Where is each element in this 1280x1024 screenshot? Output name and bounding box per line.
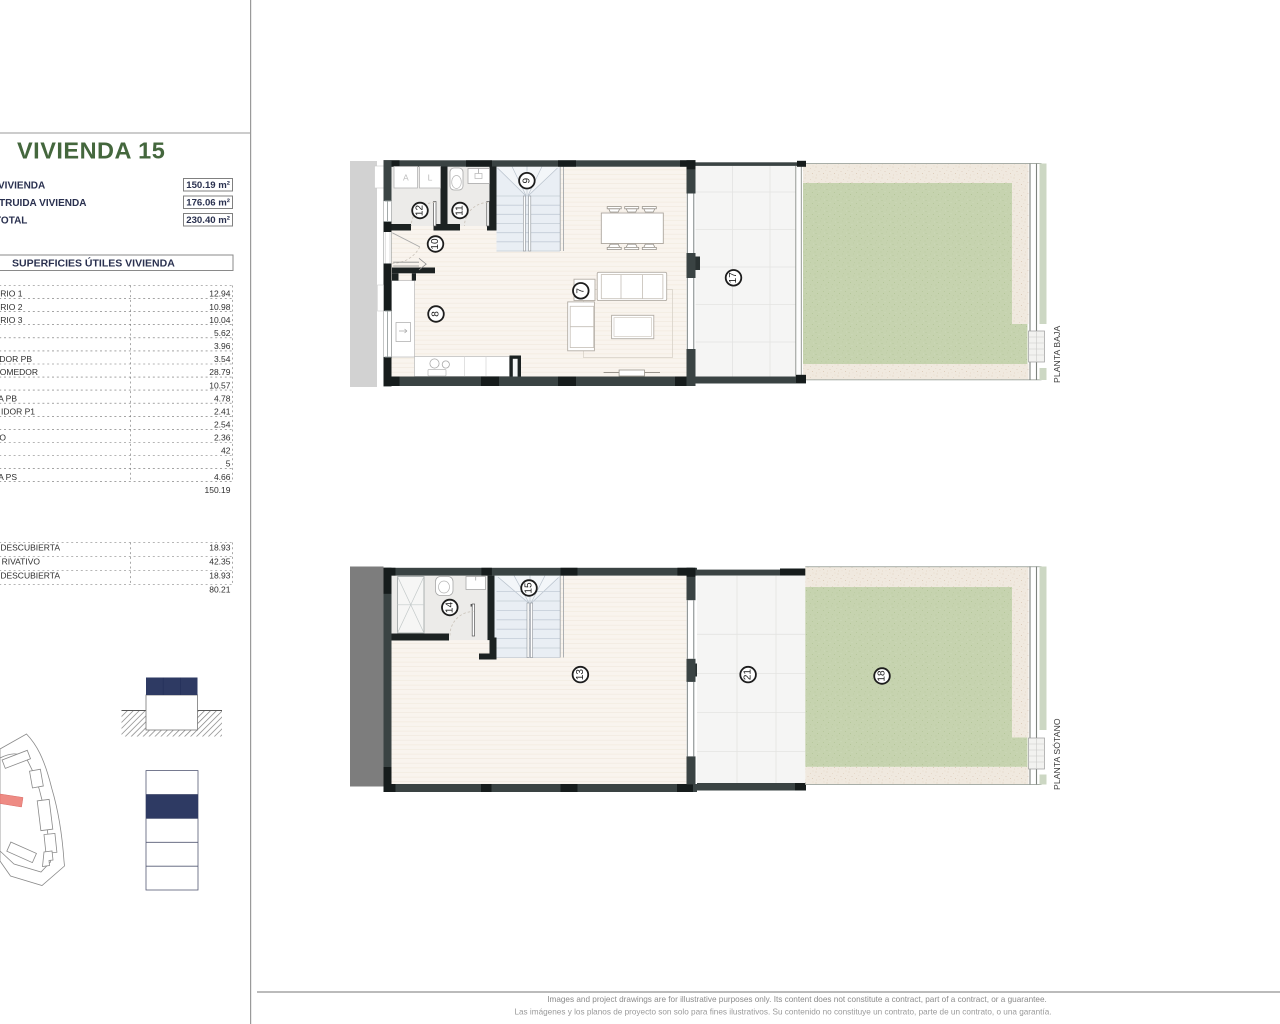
svg-text:2.36: 2.36 <box>214 433 231 443</box>
svg-text:RIO 3: RIO 3 <box>0 315 22 325</box>
svg-text:5.62: 5.62 <box>214 328 231 338</box>
svg-text:PLANTA BAJA: PLANTA BAJA <box>1052 326 1062 383</box>
svg-text:42.35: 42.35 <box>209 557 231 567</box>
svg-text:12.94: 12.94 <box>209 289 231 299</box>
svg-text:TRUIDA VIVIENDA: TRUIDA VIVIENDA <box>0 198 86 209</box>
svg-text:42: 42 <box>221 446 231 456</box>
svg-text:8: 8 <box>431 311 442 317</box>
svg-text:RIVATIVO: RIVATIVO <box>2 557 41 567</box>
svg-text:2.41: 2.41 <box>214 406 231 416</box>
svg-text:L: L <box>428 173 433 183</box>
svg-text:17: 17 <box>728 272 739 284</box>
svg-text:18: 18 <box>877 670 888 682</box>
svg-text:150.19: 150.19 <box>205 485 231 495</box>
svg-text:IDOR PB: IDOR PB <box>0 354 32 364</box>
svg-text:5: 5 <box>226 459 231 469</box>
svg-text:9: 9 <box>521 177 532 183</box>
svg-text:O: O <box>0 433 6 443</box>
svg-text:IDOR P1: IDOR P1 <box>1 406 35 416</box>
svg-text:13: 13 <box>575 669 586 681</box>
svg-text:14: 14 <box>444 602 455 614</box>
svg-text:RIO 2: RIO 2 <box>0 302 22 312</box>
svg-text:18.93: 18.93 <box>209 543 231 553</box>
svg-text:10.98: 10.98 <box>209 302 231 312</box>
svg-text:SUPERFICIES ÚTILES VIVIENDA: SUPERFICIES ÚTILES VIVIENDA <box>12 257 175 270</box>
svg-text:4.78: 4.78 <box>214 393 231 403</box>
svg-text:230.40 m²: 230.40 m² <box>186 215 230 226</box>
svg-text:VIVIENDA 15: VIVIENDA 15 <box>17 138 165 164</box>
svg-text:TOTAL: TOTAL <box>0 216 27 227</box>
svg-text:3.54: 3.54 <box>214 354 231 364</box>
svg-text:10: 10 <box>430 238 441 250</box>
svg-text:10.04: 10.04 <box>209 315 231 325</box>
svg-text:7: 7 <box>575 288 586 294</box>
svg-text:3.96: 3.96 <box>214 341 231 351</box>
svg-text:10.57: 10.57 <box>209 380 231 390</box>
svg-text:4.66: 4.66 <box>214 472 231 482</box>
svg-text:176.06 m²: 176.06 m² <box>186 198 230 209</box>
svg-text:18.93: 18.93 <box>209 571 231 581</box>
svg-text:PLANTA SÓTANO: PLANTA SÓTANO <box>1052 718 1062 790</box>
svg-text:150.19 m²: 150.19 m² <box>186 180 230 191</box>
svg-text:DESCUBIERTA: DESCUBIERTA <box>0 571 60 581</box>
svg-text:A: A <box>403 173 409 183</box>
svg-text:12: 12 <box>415 205 426 217</box>
svg-text:2.54: 2.54 <box>214 420 231 430</box>
svg-text:A PS: A PS <box>0 472 17 482</box>
svg-text:A PB: A PB <box>0 393 17 403</box>
svg-text:15: 15 <box>524 582 535 594</box>
svg-text:OMEDOR: OMEDOR <box>0 367 38 377</box>
svg-text:Images and project drawings ar: Images and project drawings are for illu… <box>547 995 1047 1004</box>
svg-text:80.21: 80.21 <box>209 585 231 595</box>
svg-text:28.79: 28.79 <box>209 367 231 377</box>
svg-text:Las imágenes y los planos de p: Las imágenes y los planos de proyecto so… <box>514 1008 1051 1017</box>
svg-text:21: 21 <box>743 669 754 681</box>
svg-text:DESCUBIERTA: DESCUBIERTA <box>0 543 60 553</box>
svg-text:11: 11 <box>455 205 466 216</box>
svg-text:RIO 1: RIO 1 <box>0 289 22 299</box>
svg-text:VIVIENDA: VIVIENDA <box>0 181 45 192</box>
